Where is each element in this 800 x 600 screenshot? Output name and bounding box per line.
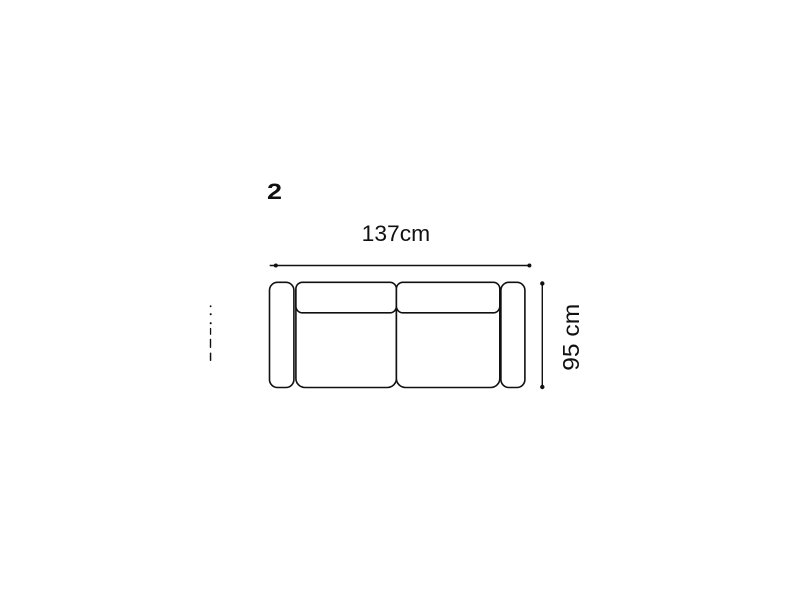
svg-text:95 cm: 95 cm: [558, 304, 584, 371]
svg-text:2: 2: [267, 179, 282, 204]
svg-text:137cm: 137cm: [362, 221, 431, 246]
